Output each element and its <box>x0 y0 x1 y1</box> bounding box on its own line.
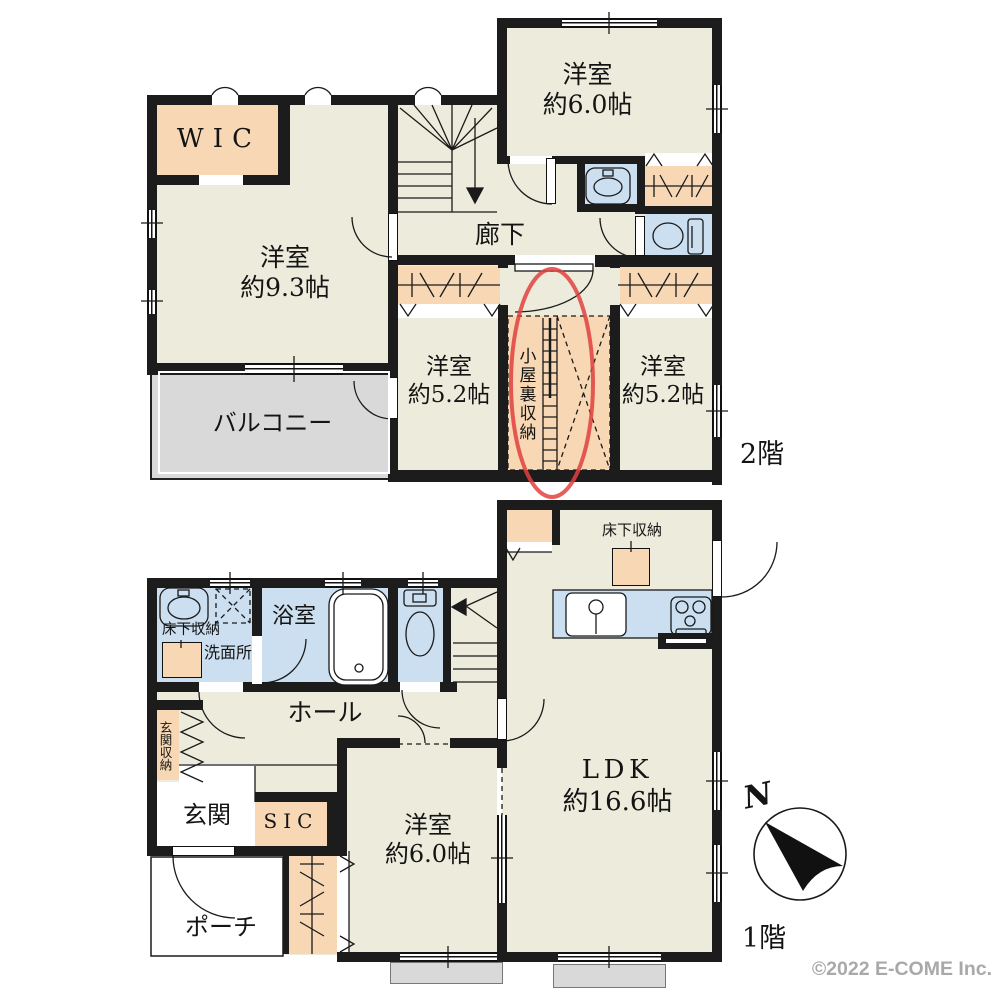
door-arc <box>398 716 425 743</box>
stairs-2f-icon <box>398 105 497 212</box>
room-label-ldk: LDK 約16.6帖 <box>535 754 700 820</box>
opening-dashed <box>398 744 502 815</box>
label-underfloor-washroom: 床下収納 <box>153 622 229 639</box>
door-arc <box>502 699 544 741</box>
washbasin-icon <box>586 168 630 204</box>
room-label-porch: ポーチ <box>175 914 267 942</box>
door-arc <box>199 692 245 738</box>
room-name: LDK <box>582 755 654 787</box>
door-arc <box>600 218 640 258</box>
room-label-attic: 小屋裏収納 <box>508 324 544 464</box>
room-name: 洋室 <box>426 353 472 381</box>
door-arc <box>402 690 440 728</box>
room-label-corridor: 廊下 <box>452 220 548 250</box>
window-arc <box>305 87 331 95</box>
entrance-storage-folding-door <box>181 712 203 782</box>
stairs-1f-icon <box>452 592 497 682</box>
window-arc <box>415 87 441 95</box>
label-underfloor-kitchen: 床下収納 <box>594 521 670 540</box>
floor-plan: WIC 洋室 約9.3帖 洋室 約6.0帖 廊下 洋室 約5.2帖 洋室 約5.… <box>0 0 1000 1000</box>
room-label-hall: ホール <box>280 698 370 728</box>
door-arc <box>354 381 392 419</box>
room-size: 約5.2帖 <box>622 381 705 409</box>
room-label-entrance: 玄関 <box>178 802 236 830</box>
room-label-wic: WIC <box>160 122 278 158</box>
door-arc <box>262 639 306 683</box>
room-label-sic: SIC <box>256 808 326 834</box>
stove-icon <box>671 597 711 635</box>
room-size: 約16.6帖 <box>563 787 673 819</box>
room-label-bedroom60-2f: 洋室 約6.0帖 <box>505 58 670 122</box>
room-name: 洋室 <box>562 60 612 91</box>
door-arc <box>722 542 777 597</box>
room-size: 約5.2帖 <box>408 381 491 409</box>
label-entrance-storage: 玄関収納 <box>155 711 175 781</box>
room-name: 洋室 <box>640 353 686 381</box>
room-label-bedroom93: 洋室 約9.3帖 <box>195 242 375 304</box>
room-label-bedroom52-left: 洋室 約5.2帖 <box>398 350 500 412</box>
copyright-text: ©2022 E-COME Inc. <box>700 958 992 988</box>
room-name: 洋室 <box>260 243 310 274</box>
room-label-bedroom60-1f: 洋室 約6.0帖 <box>358 808 498 872</box>
washing-machine-icon <box>216 589 250 623</box>
room-size: 約6.0帖 <box>385 840 471 869</box>
room-label-balcony: バルコニー <box>205 410 340 438</box>
window-arc <box>212 87 238 95</box>
door-arc <box>508 160 552 204</box>
room-size: 約6.0帖 <box>543 90 633 121</box>
floorplan-annotations <box>0 0 1000 1000</box>
toilet-icon <box>653 219 703 254</box>
toilet-icon <box>404 590 436 656</box>
bathtub-icon <box>329 589 388 685</box>
door-arc <box>173 856 235 918</box>
floor1-label: 1階 <box>726 922 802 956</box>
attic-ladder-icon <box>543 318 557 470</box>
room-label-bath: 浴室 <box>264 604 324 630</box>
room-label-washroom: 洗面所 <box>196 643 260 663</box>
compass-icon <box>754 808 846 900</box>
room-label-bedroom52-right: 洋室 約5.2帖 <box>612 350 714 412</box>
floor2-label: 2階 <box>724 438 800 472</box>
attic-cross <box>557 316 610 470</box>
washbasin-icon <box>160 588 208 626</box>
room-size: 約9.3帖 <box>240 273 330 304</box>
room-name: 洋室 <box>404 811 452 840</box>
